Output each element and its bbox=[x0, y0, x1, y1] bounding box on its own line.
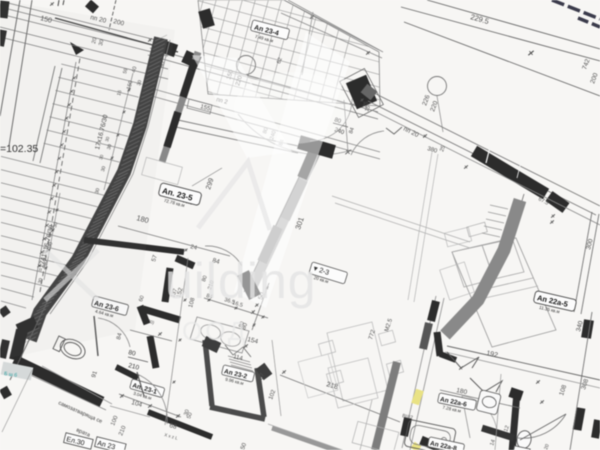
svg-text:uilding: uilding bbox=[165, 253, 317, 309]
svg-text:ООД: ООД bbox=[182, 316, 248, 346]
